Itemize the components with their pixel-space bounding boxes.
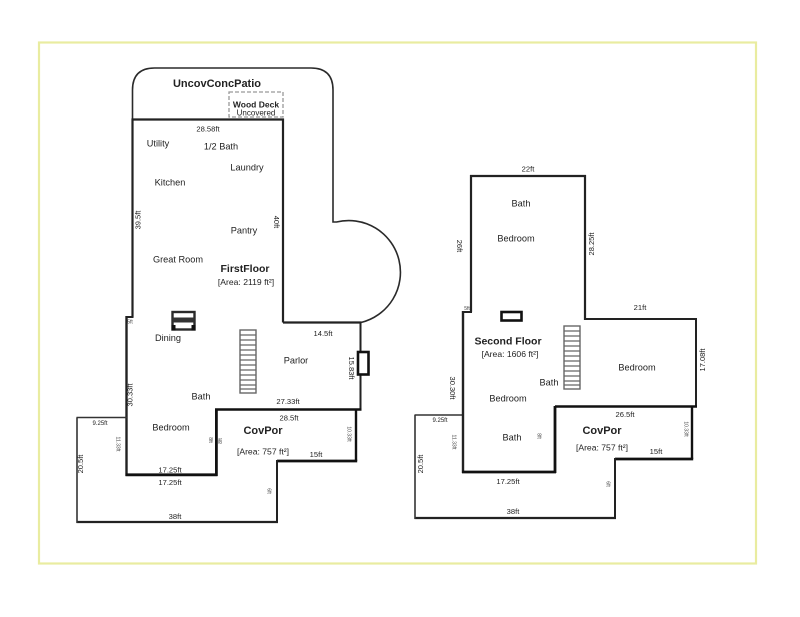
svg-text:Bath: Bath: [503, 433, 522, 443]
svg-text:14.5ft: 14.5ft: [314, 329, 334, 338]
svg-text:Bedroom: Bedroom: [489, 394, 527, 404]
svg-text:21ft: 21ft: [634, 303, 648, 312]
svg-text:15.83ft: 15.83ft: [347, 357, 356, 381]
svg-text:9.25ft: 9.25ft: [432, 418, 447, 424]
svg-text:26.5ft: 26.5ft: [616, 410, 636, 419]
svg-text:FirstFloor: FirstFloor: [221, 263, 270, 275]
svg-text:30.30ft: 30.30ft: [448, 377, 457, 401]
svg-text:Bath: Bath: [512, 199, 531, 209]
svg-text:5ft: 5ft: [127, 320, 133, 326]
svg-text:Pantry: Pantry: [231, 226, 258, 236]
svg-text:Bedroom: Bedroom: [497, 234, 535, 244]
svg-text:Second Floor: Second Floor: [474, 336, 541, 348]
svg-text:[Area: 2119 ft²]: [Area: 2119 ft²]: [218, 277, 274, 287]
svg-text:Dining: Dining: [155, 333, 181, 343]
svg-text:Bath: Bath: [540, 378, 559, 388]
svg-text:8ft: 8ft: [207, 437, 213, 443]
svg-text:5ft: 5ft: [464, 306, 470, 312]
svg-text:Bedroom: Bedroom: [152, 423, 190, 433]
svg-text:15ft: 15ft: [650, 447, 664, 456]
svg-text:Utility: Utility: [147, 139, 170, 149]
svg-text:Great Room: Great Room: [153, 255, 203, 265]
svg-text:8ft: 8ft: [218, 438, 224, 444]
svg-text:38ft: 38ft: [169, 512, 183, 521]
svg-text:9.25ft: 9.25ft: [92, 421, 107, 427]
svg-text:[Area: 757 ft²]: [Area: 757 ft²]: [237, 447, 289, 457]
svg-text:Kitchen: Kitchen: [155, 178, 186, 188]
svg-text:20.5ft: 20.5ft: [76, 454, 85, 474]
svg-text:28.58ft: 28.58ft: [196, 125, 220, 134]
svg-text:22ft: 22ft: [522, 165, 536, 174]
svg-text:Bedroom: Bedroom: [618, 363, 656, 373]
svg-text:28.5ft: 28.5ft: [280, 414, 300, 423]
svg-text:26ft: 26ft: [455, 240, 464, 253]
svg-text:38ft: 38ft: [507, 507, 521, 516]
svg-text:Bath: Bath: [192, 392, 211, 402]
svg-text:10.33ft: 10.33ft: [346, 426, 352, 442]
svg-text:27.33ft: 27.33ft: [276, 397, 300, 406]
svg-text:1/2 Bath: 1/2 Bath: [204, 142, 238, 152]
svg-text:6ft: 6ft: [266, 488, 272, 494]
svg-text:Uncovered: Uncovered: [237, 109, 276, 118]
svg-text:20.5ft: 20.5ft: [416, 454, 425, 474]
svg-text:40ft: 40ft: [272, 216, 281, 229]
svg-text:UncovConcPatio: UncovConcPatio: [173, 78, 261, 90]
svg-text:17.25ft: 17.25ft: [158, 466, 182, 475]
svg-text:17.08ft: 17.08ft: [698, 348, 707, 372]
svg-text:CovPor: CovPor: [243, 425, 283, 437]
svg-text:15ft: 15ft: [310, 450, 324, 459]
svg-text:17.25ft: 17.25ft: [158, 478, 182, 487]
svg-text:6ft: 6ft: [605, 481, 611, 487]
svg-text:11.33ft: 11.33ft: [115, 437, 121, 453]
svg-text:8ft: 8ft: [536, 433, 542, 439]
svg-text:[Area: 1606 ft²]: [Area: 1606 ft²]: [482, 349, 539, 359]
svg-text:Laundry: Laundry: [230, 163, 264, 173]
svg-text:11.33ft: 11.33ft: [451, 435, 457, 451]
svg-text:17.25ft: 17.25ft: [496, 477, 520, 486]
svg-text:30.33ft: 30.33ft: [125, 383, 134, 407]
svg-text:10.33ft: 10.33ft: [683, 421, 689, 437]
svg-text:CovPor: CovPor: [582, 425, 622, 437]
svg-text:Parlor: Parlor: [284, 356, 309, 366]
svg-text:[Area: 757 ft²]: [Area: 757 ft²]: [576, 443, 628, 453]
svg-text:28.25ft: 28.25ft: [587, 232, 596, 256]
svg-text:39.5ft: 39.5ft: [133, 210, 142, 230]
